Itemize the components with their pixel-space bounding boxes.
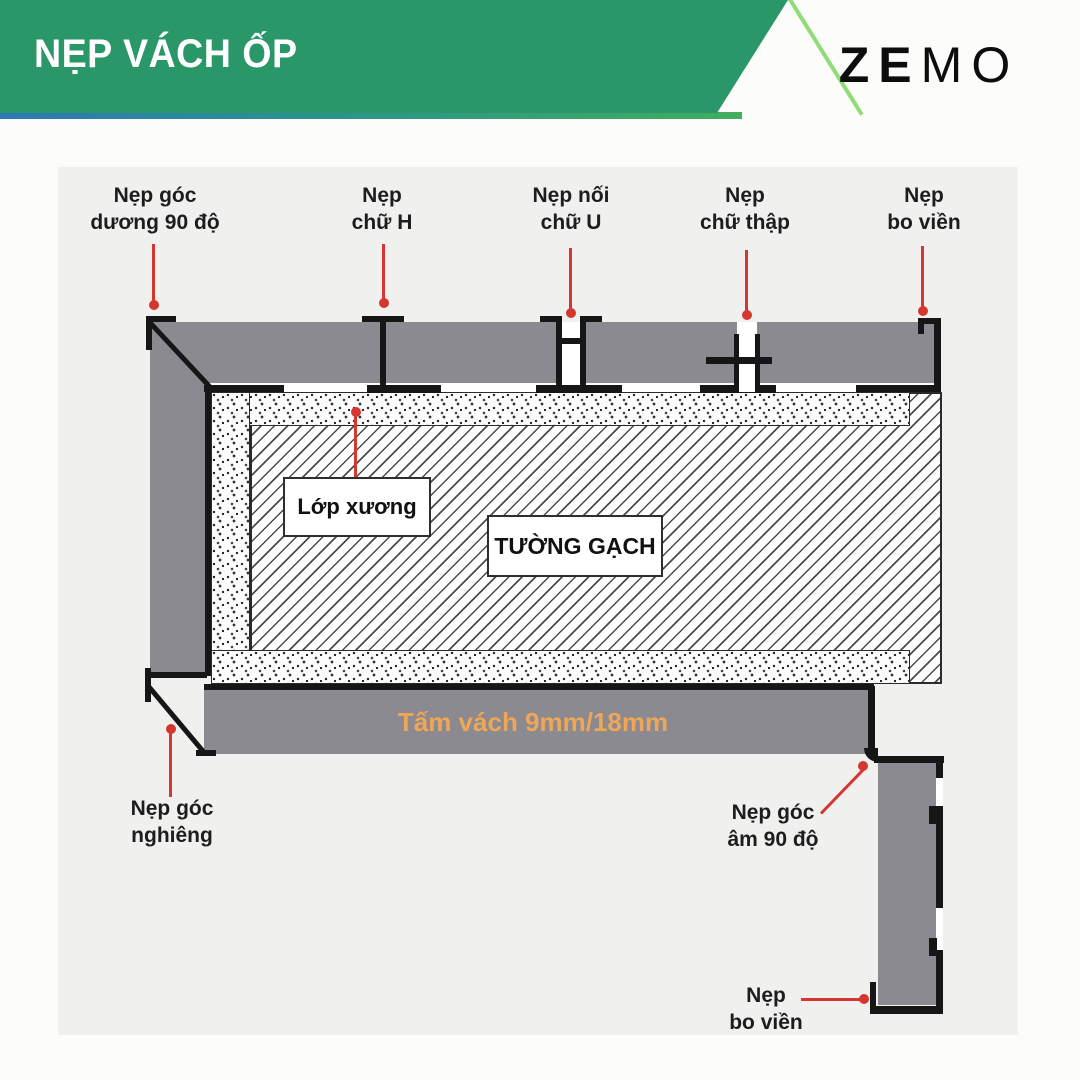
callout-edge-bottom: Nẹp bo viền xyxy=(681,982,851,1036)
trim-edge-top-right-stem xyxy=(934,318,941,392)
arrow-slant-corner xyxy=(169,733,172,797)
arrow-frame-layer xyxy=(354,412,357,477)
arrow-edge-bottom-dot xyxy=(859,994,869,1004)
callout-h-trim: Nẹp chữ H xyxy=(297,182,467,236)
trim-right-edge-nub-1 xyxy=(929,806,937,824)
panel-right-vertical xyxy=(878,763,936,1005)
arrow-corner-positive xyxy=(152,244,155,302)
trim-foot-c xyxy=(536,385,622,393)
arrow-edge-top-dot xyxy=(918,306,928,316)
trim-u-stem-right xyxy=(580,318,586,388)
trim-u-interior xyxy=(562,322,580,384)
arrow-frame-layer-dot xyxy=(351,407,361,417)
trim-edge-bottom-bar xyxy=(870,1006,943,1014)
callout-line: chữ H xyxy=(297,209,467,236)
frame-layer-left xyxy=(211,392,250,684)
brick-wall-label-box: TƯỜNG GẠCH xyxy=(487,515,663,577)
panel-top xyxy=(150,322,941,383)
trim-left-vertical xyxy=(205,385,211,676)
callout-slant-corner: Nẹp góc nghiêng xyxy=(87,795,257,849)
trim-slant-cap-h xyxy=(145,672,207,678)
trim-h-stem xyxy=(380,316,386,392)
callout-corner-negative: Nẹp góc âm 90 độ xyxy=(688,799,858,853)
frame-layer-label-box: Lớp xương xyxy=(283,477,431,537)
arrow-u-trim-dot xyxy=(566,308,576,318)
frame-layer-label: Lớp xương xyxy=(297,494,416,520)
callout-line: Nẹp góc xyxy=(688,799,858,826)
header-gradient-underline xyxy=(0,112,742,119)
panel-thickness-label: Tấm vách 9mm/18mm xyxy=(283,707,783,738)
callout-u-trim: Nẹp nối chữ U xyxy=(486,182,656,236)
callout-line: bo viền xyxy=(839,209,1009,236)
callout-line: Nẹp xyxy=(681,982,851,1009)
callout-line: Nẹp xyxy=(660,182,830,209)
trim-corner-negative-vert xyxy=(868,686,875,756)
callout-cross-trim: Nẹp chữ thập xyxy=(660,182,830,236)
trim-cross-bar xyxy=(706,357,772,364)
arrow-slant-corner-dot xyxy=(166,724,176,734)
arrow-corner-positive-dot xyxy=(149,300,159,310)
page-title: NẸP VÁCH ỐP xyxy=(34,32,298,77)
trim-right-edge-notch-1 xyxy=(936,778,943,806)
callout-line: bo viền xyxy=(681,1009,851,1036)
arrow-h-trim-dot xyxy=(379,298,389,308)
arrow-edge-top xyxy=(921,246,924,308)
trim-foot-e xyxy=(856,385,940,392)
trim-edge-top-right-hook xyxy=(918,318,924,334)
trim-slant-foot xyxy=(196,750,216,756)
trim-bottom-panel-top-line xyxy=(204,684,874,690)
trim-right-edge-notch-2 xyxy=(936,908,943,950)
callout-line: dương 90 độ xyxy=(70,209,240,236)
arrow-cross-trim-dot xyxy=(742,310,752,320)
callout-line: Nẹp nối xyxy=(486,182,656,209)
callout-line: âm 90 độ xyxy=(688,826,858,853)
trim-foot-b xyxy=(367,385,441,393)
frame-layer-top xyxy=(211,392,910,426)
callout-line: nghiêng xyxy=(87,822,257,849)
brand-logo-heavy: ZE xyxy=(839,37,921,93)
brick-wall-label: TƯỜNG GẠCH xyxy=(494,533,655,560)
brand-logo-light: MO xyxy=(921,37,1020,93)
callout-line: Nẹp xyxy=(297,182,467,209)
trim-right-edge-nub-2 xyxy=(929,938,937,956)
callout-line: chữ thập xyxy=(660,209,830,236)
trim-corner-negative-horiz xyxy=(874,756,944,763)
frame-layer-bottom xyxy=(211,650,910,684)
callout-corner-positive: Nẹp góc dương 90 độ xyxy=(70,182,240,236)
brand-logo: ZEMO xyxy=(826,36,1032,94)
arrow-corner-negative-dot xyxy=(858,761,868,771)
arrow-h-trim xyxy=(382,244,385,300)
arrow-cross-trim xyxy=(745,250,748,312)
trim-u-stem-left xyxy=(556,318,562,388)
callout-edge-top: Nẹp bo viền xyxy=(839,182,1009,236)
arrow-u-trim xyxy=(569,248,572,310)
callout-line: Nẹp xyxy=(839,182,1009,209)
callout-line: chữ U xyxy=(486,209,656,236)
trim-foot-a xyxy=(204,385,284,392)
trim-u-crossbar xyxy=(556,338,586,344)
callout-line: Nẹp góc xyxy=(70,182,240,209)
callout-line: Nẹp góc xyxy=(87,795,257,822)
